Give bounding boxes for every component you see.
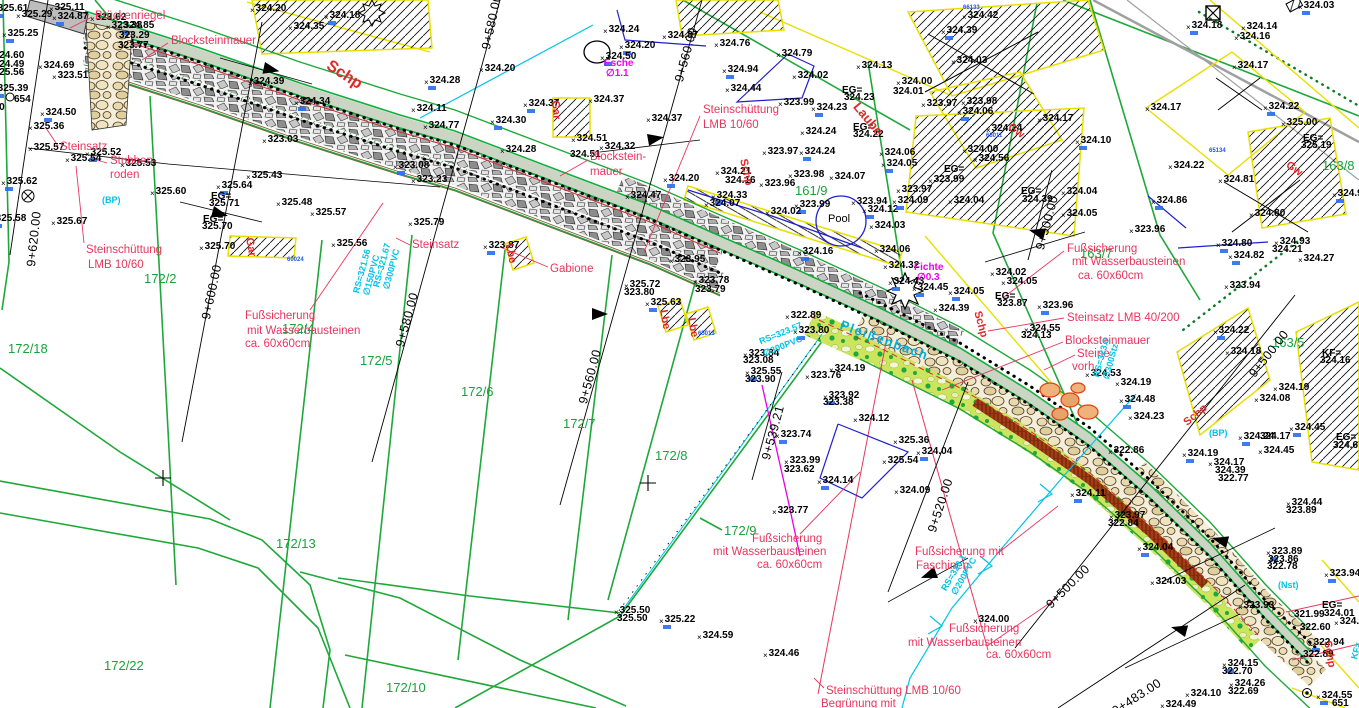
point-id-chip (1267, 112, 1275, 116)
spot-elevation: 325.58 (0, 214, 26, 224)
spot-elevation: 322.69 (1228, 687, 1259, 697)
point-id-chip (1320, 701, 1328, 705)
construction-annotation: Blockstein- (590, 152, 646, 164)
spot-elevation: 323.94 (1324, 569, 1359, 579)
spot-elevation: 324.50 (40, 108, 76, 118)
spot-elevation: 324.45 (912, 283, 948, 293)
construction-annotation: Gabione (550, 264, 593, 276)
spot-elevation: 324.76 (714, 39, 750, 49)
spot-elevation: 324.47 (625, 191, 661, 201)
point-id-chip (1232, 261, 1240, 265)
point-id-chip (1155, 206, 1163, 210)
point-id-chip (487, 251, 495, 255)
point-id-chip (726, 75, 734, 79)
construction-annotation: Steinschüttung (703, 105, 779, 117)
construction-annotation: LMB 10/60 (703, 120, 759, 132)
spot-elevation: 324.39 (248, 77, 284, 87)
point-id-chip (56, 22, 64, 26)
spot-elevation: 324.19 (829, 364, 865, 374)
point-id-chip (1186, 459, 1194, 463)
construction-annotation: roden (110, 170, 139, 182)
parcel-number: 172/13 (276, 537, 316, 550)
point-id-chip (1293, 433, 1301, 437)
point-id-chip (1074, 499, 1082, 503)
spot-elevation: 324.56 (973, 154, 1009, 164)
spot-elevation: 322.84 (1108, 519, 1139, 529)
station-label: 9+580.00 (480, 0, 504, 51)
spot-elevation: 324.05 (881, 159, 917, 169)
tree-label: ∅1.1 (606, 69, 629, 79)
spot-elevation: 325.22 (659, 615, 695, 625)
spot-elevation: 323.99 (928, 175, 964, 185)
spot-elevation: 324.04 (916, 447, 952, 457)
spot-elevation: 325.36 (893, 436, 929, 446)
spot-elevation: 325.36 (28, 122, 64, 132)
spot-elevation: 324.17 (1037, 114, 1073, 124)
building-code: Gar (243, 237, 257, 258)
spot-elevation: 324.05 (948, 287, 984, 297)
construction-annotation: Fußsicherung (245, 311, 315, 323)
spot-elevation: 322.60 (1300, 623, 1331, 633)
point-id-chip (803, 157, 811, 161)
spot-elevation: 323.79 (695, 285, 726, 295)
spot-elevation: 325.50 (617, 614, 648, 624)
construction-annotation: LMB 10/60 (88, 260, 144, 272)
spot-elevation: 324.37 (646, 114, 682, 124)
spot-elevation: 324.06 (874, 245, 910, 255)
spot-elevation: 324.30 (490, 116, 526, 126)
building-code: Lbe (503, 243, 517, 264)
point-id-chip (1041, 311, 1049, 315)
utility-label: KF= (1350, 641, 1359, 660)
spot-elevation: 640 (0, 103, 5, 113)
point-id-chip (1190, 31, 1198, 35)
construction-annotation: ca. 60x60cm (986, 650, 1051, 662)
spot-elevation: 325.19 (1301, 141, 1332, 151)
construction-annotation: Steinsatz (412, 240, 459, 252)
spot-elevation: 651 (1332, 699, 1349, 708)
spot-elevation: 324.45 (1258, 446, 1294, 456)
spot-elevation: 324.28 (424, 76, 460, 86)
construction-annotation: Fußsicherung (752, 534, 822, 546)
building-code: Lbe (657, 309, 671, 330)
spot-elevation: 324.27 (1298, 254, 1334, 264)
point-id-chip (945, 36, 953, 40)
spot-elevation: 323.96 (1037, 301, 1073, 311)
spot-elevation: 324.28 (500, 145, 536, 155)
parcel-number: 172/10 (386, 681, 426, 694)
spot-elevation: 324.81 (1218, 175, 1254, 185)
spot-elevation: 323.97 (921, 99, 957, 109)
construction-annotation: mit Wasserbausteinen (713, 547, 826, 559)
spot-elevation: 324.20 (663, 174, 699, 184)
spot-elevation: 324.42 (962, 11, 998, 21)
point-id: 65134 (1209, 148, 1226, 154)
construction-annotation: ca. 60x60cm (1078, 271, 1143, 283)
spot-elevation: 324.6 (1333, 441, 1358, 451)
spot-elevation: 324.94 (722, 65, 758, 75)
building-code: Schp (1182, 403, 1210, 429)
point-id: 65013 (698, 331, 715, 337)
spot-elevation: 324.06 (879, 148, 915, 158)
spot-elevation: 324.02 (1334, 617, 1359, 627)
construction-annotation: ca. 60x60cm (245, 339, 310, 351)
point-id-chip (1336, 199, 1344, 203)
point-id-chip (1242, 442, 1250, 446)
spot-elevation: 324.45 (1289, 423, 1325, 433)
spot-elevation: 324.39 (933, 304, 969, 314)
point-id-chip (1217, 336, 1225, 340)
point-id-chip (1302, 11, 1310, 15)
spot-elevation: 323.90 (745, 375, 776, 385)
spot-elevation: 323.08 (743, 356, 774, 366)
site-plan: 325.61325.29325.11324.87323.62323.38324.… (0, 0, 1359, 708)
spot-elevation: 324.10 (1075, 136, 1111, 146)
point-id-chip (6, 39, 14, 43)
spot-elevation: 324.87 (52, 12, 88, 22)
construction-annotation: mauer (590, 167, 623, 179)
parcel-number: 172/2 (144, 272, 177, 285)
point-id-chip (1141, 553, 1149, 557)
spot-elevation: 322.78 (1267, 562, 1298, 572)
building-code: Gw (1006, 122, 1026, 141)
point-id-chip (298, 107, 306, 111)
spot-elevation: 324.17 (1232, 61, 1268, 71)
station-label: 9+483.00 (1110, 677, 1164, 708)
point-id-chip (916, 293, 924, 297)
construction-annotation: Fußsicherung (1067, 244, 1137, 256)
point-id-chip (0, 14, 4, 18)
spot-elevation: 323.97 (762, 147, 798, 157)
station-label: 9+620.00 (25, 211, 43, 268)
spot-elevation: 324.19 (1273, 383, 1309, 393)
spot-elevation: 325.25 (2, 29, 38, 39)
station-label: 9+600.00 (200, 264, 224, 321)
spot-elevation: 324.09 (894, 486, 930, 496)
point-id-chip (527, 109, 535, 113)
construction-annotation: Blocksteinmauer (171, 36, 256, 48)
point-id-chip (801, 257, 809, 261)
spot-elevation: 324.37 (588, 95, 624, 105)
point-id: 66133 (963, 5, 980, 11)
spot-elevation: 324.59 (697, 631, 733, 641)
spot-elevation: 325.70 (199, 242, 235, 252)
spot-elevation: 324.07 (829, 172, 865, 182)
spot-elevation: 324.19 (1115, 378, 1151, 388)
spot-elevation: 324.13 (1021, 331, 1052, 341)
spot-elevation: 323.77 (772, 506, 808, 516)
point-id-chip (494, 126, 502, 130)
spot-elevation: 324.03 (1150, 577, 1186, 587)
spot-elevation: 324.86 (1151, 196, 1187, 206)
building-code: Gw (1284, 160, 1304, 179)
spot-elevation: 325.56 (0, 68, 24, 78)
spot-elevation: 324.02 (792, 71, 828, 81)
point-id-chip (0, 224, 2, 228)
spot-elevation: 325.64 (216, 181, 252, 191)
spot-elevation: 322.89 (785, 311, 821, 321)
spot-elevation: 325.70 (202, 222, 233, 232)
spot-elevation: 324.06 (957, 107, 993, 117)
spot-elevation: 324.04 (1137, 543, 1173, 553)
point-id-chip (885, 169, 893, 173)
point-id-chip (663, 625, 671, 629)
spot-elevation: 324.11 (411, 104, 447, 114)
point-id-chip (1220, 249, 1228, 253)
spot-elevation: 324.01 (893, 87, 924, 97)
spot-elevation: 325.54 (65, 154, 101, 164)
point-id-chip (866, 215, 874, 219)
point-id-chip (397, 171, 405, 175)
spot-elevation: 323.51 (52, 71, 88, 81)
utility-label: (BP) (1209, 429, 1228, 438)
point-id: 60024 (287, 257, 304, 263)
construction-annotation: Steinschüttung (86, 245, 162, 257)
spot-elevation: 325.71 (209, 199, 240, 209)
spot-elevation: 323.93 (1238, 601, 1274, 611)
spot-elevation: 323.03 (262, 135, 298, 145)
spot-elevation: 325.29 (16, 10, 52, 20)
spot-elevation: 324.07 (704, 199, 740, 209)
spot-elevation: 324.49 (1160, 700, 1196, 708)
spot-elevation: 325.79 (408, 218, 444, 228)
construction-annotation: Steinsatz LMB 40/200 (1067, 313, 1180, 325)
point-id-chip (0, 94, 4, 98)
parcel-number: 172/7 (563, 417, 596, 430)
spot-elevation: 325.48 (276, 198, 312, 208)
construction-annotation: Begrünung mit (821, 699, 896, 708)
construction-annotation: Fußsicherung (949, 624, 1019, 636)
spot-elevation: 321.99 (1294, 610, 1325, 620)
spot-elevation: 324.13 (856, 61, 892, 71)
spot-elevation: 322.77 (1218, 474, 1249, 484)
spot-elevation: 324.03 (1298, 1, 1334, 11)
spot-elevation: 323.96 (1129, 225, 1165, 235)
spot-elevation: 324.02 (765, 207, 801, 217)
spot-elevation: 324.18 (1186, 21, 1222, 31)
parcel-number: 172/5 (360, 354, 393, 367)
construction-annotation: Steinschüttung LMB 10/60 (826, 686, 961, 698)
parcel-number: 161/9 (795, 184, 828, 197)
spot-elevation: 324.96 (1332, 189, 1359, 199)
parcel-number: 172/6 (461, 385, 494, 398)
spot-elevation: 324.20 (619, 41, 655, 51)
construction-annotation: mit Wasserbausteinen (908, 638, 1021, 650)
spot-elevation: 323.08 (393, 161, 429, 171)
spot-elevation: 323.99 (778, 98, 814, 108)
spot-elevation: 323.97 (896, 185, 932, 195)
building-code: Schp (971, 310, 989, 339)
spot-elevation: 324.17 (1260, 432, 1291, 442)
point-id-chip (821, 486, 829, 490)
station-label: 9+560.00 (577, 348, 603, 405)
utility-label: (BP) (102, 196, 121, 205)
spot-elevation: 324.77 (423, 121, 459, 131)
spot-elevation: 324.12 (853, 414, 889, 424)
point-id-chip (920, 457, 928, 461)
construction-annotation: Steinsatz (60, 142, 107, 154)
spot-elevation: 323.89 (1286, 506, 1317, 516)
spot-elevation: 322.86 (1108, 446, 1144, 456)
spot-elevation: 325.62 (1, 177, 37, 187)
spot-elevation: 323.94 (1224, 281, 1260, 291)
construction-annotation: Brückenriegel (95, 11, 165, 23)
label-layer: 325.61325.29325.11324.87323.62323.38324.… (0, 0, 1359, 708)
point-id-chip (896, 206, 904, 210)
spot-elevation: 324.48 (1119, 395, 1155, 405)
point-id-chip (428, 86, 436, 90)
spot-elevation: 324.23 (1128, 412, 1164, 422)
spot-elevation: 323.96 (759, 179, 795, 189)
point-id-chip (1123, 405, 1131, 409)
spot-elevation: 325.63 (645, 298, 681, 308)
spot-elevation: 325.57 (310, 208, 346, 218)
spot-elevation: 324.22 (1168, 161, 1204, 171)
point-id-chip (649, 308, 657, 312)
tree-label: ∅0.3 (917, 273, 940, 283)
spot-elevation: 323.62 (784, 465, 815, 475)
spot-elevation: 324.03 (951, 56, 987, 66)
spot-elevation: 324.04 (1061, 187, 1097, 197)
spot-elevation: 324.35 (288, 22, 324, 32)
construction-annotation: ca. 60x60cm (757, 560, 822, 572)
parcel-number: 163/8 (1322, 159, 1355, 172)
spot-elevation: 324.18 (324, 11, 360, 21)
map-text: Pool (828, 214, 850, 225)
spot-elevation: 323.38 (823, 398, 854, 408)
point-id: 66011 (986, 133, 1002, 139)
spot-elevation: 324.14 (817, 476, 853, 486)
spot-elevation: 324.46 (763, 649, 799, 659)
station-label: 9+580.00 (394, 291, 420, 348)
spot-elevation: 324.23 (811, 103, 847, 113)
spot-elevation: 324.10 (1185, 689, 1221, 699)
spot-elevation: 324.08 (1254, 394, 1290, 404)
spot-elevation: 324.20 (250, 4, 286, 14)
spot-elevation: 324.18 (1225, 347, 1261, 357)
spot-elevation: 324.17 (1145, 103, 1181, 113)
construction-annotation: mit Wasserbausteinen (1072, 257, 1185, 269)
point-id-chip (815, 113, 823, 117)
point-id-chip (779, 440, 787, 444)
point-id-chip (328, 21, 336, 25)
building-code: Schp (323, 58, 365, 93)
spot-elevation: 323.23 (411, 175, 447, 185)
spot-elevation: 324.16 (1234, 32, 1270, 42)
parcel-number: 172/22 (104, 659, 144, 672)
point-id-chip (667, 184, 675, 188)
spot-elevation: 325.00 (1281, 118, 1317, 128)
spot-elevation: 324.24 (800, 127, 836, 137)
spot-elevation: 324.05 (1001, 277, 1037, 287)
spot-elevation: 325.60 (150, 187, 186, 197)
spot-elevation: 324.44 (725, 84, 761, 94)
parcel-number: 172/18 (8, 342, 48, 355)
spot-elevation: 324.04 (948, 196, 984, 206)
spot-elevation: 322.70 (1222, 667, 1253, 677)
spot-elevation: 324.34 (294, 97, 330, 107)
station-label: 9+520.00 (926, 477, 955, 534)
stream-name: Pleißenbach (839, 318, 931, 362)
station-label: 9+500.00 (1044, 563, 1092, 611)
point-id-chip (1079, 146, 1087, 150)
spot-elevation: 324.82 (1228, 251, 1264, 261)
spot-elevation: 324.16 (797, 247, 833, 257)
point-id-chip (892, 287, 900, 291)
utility-label: (Nst) (1278, 581, 1299, 590)
spot-elevation: 323.80 (624, 288, 655, 298)
spot-elevation: 325.39 (0, 84, 28, 94)
spot-elevation: 324.03 (869, 221, 905, 231)
spot-elevation: 324.79 (776, 49, 812, 59)
construction-annotation: mit Wasserbausteinen (247, 326, 360, 338)
point-id-chip (952, 297, 960, 301)
spot-elevation: 324.16 (1320, 356, 1351, 366)
spot-elevation: 324.80 (1249, 209, 1285, 219)
parcel-number: 172/8 (655, 449, 688, 462)
point-id-chip (5, 187, 13, 191)
point-id-chip (1328, 579, 1336, 583)
spot-elevation: 324.22 (1213, 326, 1249, 336)
spot-elevation: 323.77 (118, 41, 149, 51)
spot-elevation: 324.20 (479, 64, 515, 74)
building-code: Gar (549, 100, 562, 120)
spot-elevation: 324.24 (603, 25, 639, 35)
spot-elevation: 323.95 (669, 255, 705, 265)
spot-elevation: 324.22 (1263, 102, 1299, 112)
spot-elevation: 324.39 (941, 26, 977, 36)
spot-elevation: 324.24 (799, 147, 835, 157)
spot-elevation: 654 (14, 95, 31, 105)
construction-annotation: Stubben- (110, 156, 157, 168)
spot-elevation: 323.87 (997, 299, 1028, 309)
point-id-chip (961, 117, 969, 121)
spot-elevation: 325.57 (28, 143, 64, 153)
spot-elevation: 324.11 (1070, 489, 1106, 499)
spot-elevation: 325.54 (882, 456, 918, 466)
spot-elevation: 324.05 (1061, 209, 1097, 219)
spot-elevation: 325.67 (51, 217, 87, 227)
spot-elevation: 324.09 (892, 196, 928, 206)
spot-elevation: 324.80 (1216, 239, 1252, 249)
